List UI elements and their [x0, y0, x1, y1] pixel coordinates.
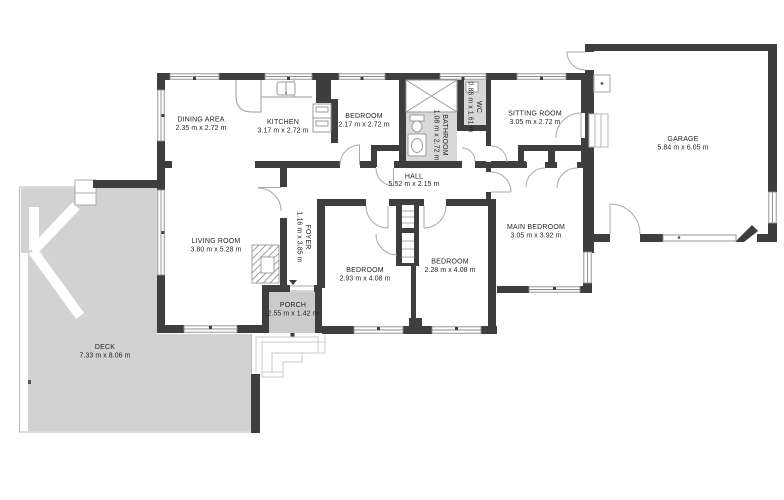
svg-text:LIVING ROOM: LIVING ROOM: [192, 238, 241, 245]
svg-text:DECK: DECK: [95, 344, 115, 351]
svg-text:2.17 m x 2.72 m: 2.17 m x 2.72 m: [339, 122, 390, 129]
svg-text:5.84 m x 6.05 m: 5.84 m x 6.05 m: [658, 145, 709, 152]
svg-text:FOYER: FOYER: [304, 224, 311, 249]
svg-text:2.93 m x 4.08 m: 2.93 m x 4.08 m: [340, 276, 391, 283]
svg-text:MAIN BEDROOM: MAIN BEDROOM: [507, 224, 565, 231]
svg-text:BEDROOM: BEDROOM: [431, 259, 469, 266]
svg-text:3.05 m x 3.92 m: 3.05 m x 3.92 m: [511, 233, 562, 240]
svg-text:DINING AREA: DINING AREA: [177, 117, 224, 124]
svg-text:3.05 m x 2.72 m: 3.05 m x 2.72 m: [510, 119, 561, 126]
svg-text:3.17 m x 2.72 m: 3.17 m x 2.72 m: [258, 128, 309, 135]
svg-text:3.80 m x 5.28 m: 3.80 m x 5.28 m: [191, 247, 242, 254]
svg-text:BEDROOM: BEDROOM: [345, 113, 383, 120]
svg-text:2.35 m x 2.72 m: 2.35 m x 2.72 m: [176, 125, 227, 132]
svg-text:PORCH: PORCH: [280, 302, 306, 309]
svg-text:GARAGE: GARAGE: [667, 136, 698, 143]
svg-text:1.16 m x 3.85 m: 1.16 m x 3.85 m: [296, 212, 303, 263]
svg-text:BEDROOM: BEDROOM: [346, 267, 384, 274]
svg-text:2.55 m x 1.42 m: 2.55 m x 1.42 m: [268, 311, 319, 318]
svg-text:5.52 m x 2.15 m: 5.52 m x 2.15 m: [389, 181, 440, 188]
svg-text:WC: WC: [475, 101, 482, 113]
svg-text:2.28 m x 4.08 m: 2.28 m x 4.08 m: [425, 267, 476, 274]
svg-text:HALL: HALL: [405, 174, 423, 181]
svg-text:BATHROOM: BATHROOM: [441, 114, 448, 156]
svg-text:1.08 m x 2.72 m: 1.08 m x 2.72 m: [433, 110, 440, 161]
svg-text:7.33 m x 8.06 m: 7.33 m x 8.06 m: [80, 353, 131, 360]
svg-text:0.86 m x 1.61 m: 0.86 m x 1.61 m: [467, 82, 474, 133]
svg-text:KITCHEN: KITCHEN: [267, 119, 299, 126]
svg-text:SITTING ROOM: SITTING ROOM: [508, 111, 562, 118]
